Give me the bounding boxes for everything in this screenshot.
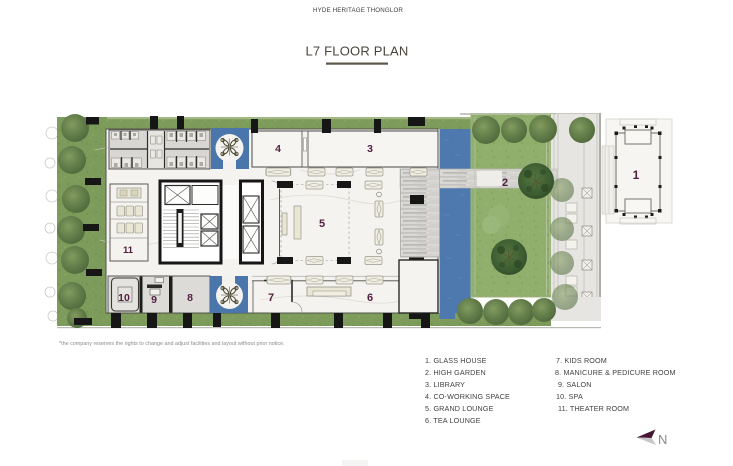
svg-text:8. MANICURE & PEDICURE ROOM: 8. MANICURE & PEDICURE ROOM <box>555 368 676 377</box>
svg-text:2: 2 <box>502 177 508 189</box>
svg-text:6. TEA LOUNGE: 6. TEA LOUNGE <box>425 416 481 425</box>
svg-text:7. KIDS ROOM: 7. KIDS ROOM <box>556 356 607 365</box>
svg-text:7: 7 <box>268 292 274 304</box>
svg-text:10. SPA: 10. SPA <box>556 392 583 401</box>
svg-text:9. SALON: 9. SALON <box>558 380 592 389</box>
svg-text:9: 9 <box>151 294 157 306</box>
svg-text:4. CO-WORKING SPACE: 4. CO-WORKING SPACE <box>425 392 510 401</box>
svg-text:4: 4 <box>275 143 281 155</box>
svg-text:11: 11 <box>123 245 134 256</box>
svg-text:3. LIBRARY: 3. LIBRARY <box>425 380 465 389</box>
svg-text:5: 5 <box>319 218 325 230</box>
svg-text:N: N <box>658 432 667 447</box>
svg-text:1. GLASS HOUSE: 1. GLASS HOUSE <box>425 356 487 365</box>
svg-text:6: 6 <box>367 292 373 304</box>
svg-text:3: 3 <box>367 143 373 155</box>
svg-text:1: 1 <box>633 168 640 182</box>
svg-text:*the company reserves the righ: *the company reserves the rights to chan… <box>59 341 285 347</box>
svg-text:HYDE HERITAGE THONGLOR: HYDE HERITAGE THONGLOR <box>313 7 403 14</box>
svg-text:5. GRAND LOUNGE: 5. GRAND LOUNGE <box>425 404 494 413</box>
svg-text:8: 8 <box>187 292 193 304</box>
svg-text:2. HIGH GARDEN: 2. HIGH GARDEN <box>425 368 486 377</box>
svg-text:11. THEATER ROOM: 11. THEATER ROOM <box>558 404 629 413</box>
svg-text:L7 FLOOR PLAN: L7 FLOOR PLAN <box>305 44 408 59</box>
svg-text:10: 10 <box>118 292 130 304</box>
